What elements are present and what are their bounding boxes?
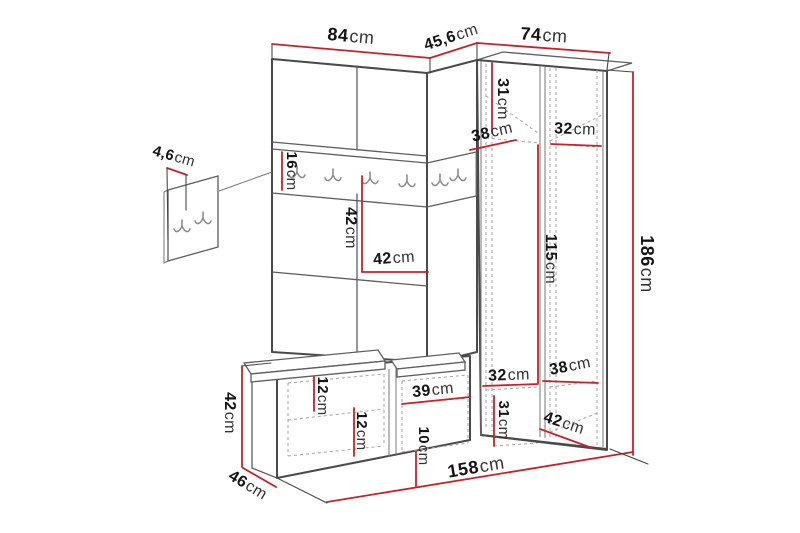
dim-label-bench-shelf-gap: 10cm: [416, 427, 433, 466]
dim-label-wardrobe-top-shelf-height: 31cm: [495, 78, 512, 120]
dim-label-top-width-right: 74cm: [520, 23, 568, 46]
diagram-canvas: 84cm 45,6cm 74cm 186cm 4,6cm 16cm 42cm 4…: [0, 0, 800, 533]
dim-label-open-shelf-height: 42cm: [343, 207, 360, 249]
dim-label-rail-height: 16cm: [284, 152, 301, 191]
dim-label-open-shelf-width: 42cm: [373, 248, 416, 268]
dim-label-bench-cushion-inset: 12cm: [315, 377, 332, 416]
dim-label-wardrobe-top-shelf-width: 32cm: [554, 120, 596, 138]
wall-panel-face: [168, 176, 218, 261]
dim-label-bench-shelf-height: 12cm: [354, 412, 371, 451]
dim-label-wardrobe-bottom-shelf-width: 32cm: [488, 366, 530, 384]
furniture-dimension-diagram: 84cm 45,6cm 74cm 186cm 4,6cm 16cm 42cm 4…: [0, 0, 800, 533]
dim-label-bench-height: 42cm: [222, 392, 239, 434]
dim-label-total-height: 186cm: [637, 235, 657, 293]
dim-label-wardrobe-bottom-shelf-height: 31cm: [496, 401, 513, 440]
dim-label-hanging-height: 115cm: [543, 234, 560, 284]
corner-panel-face: [427, 60, 477, 364]
dim-label-top-width-left: 84cm: [327, 24, 376, 48]
